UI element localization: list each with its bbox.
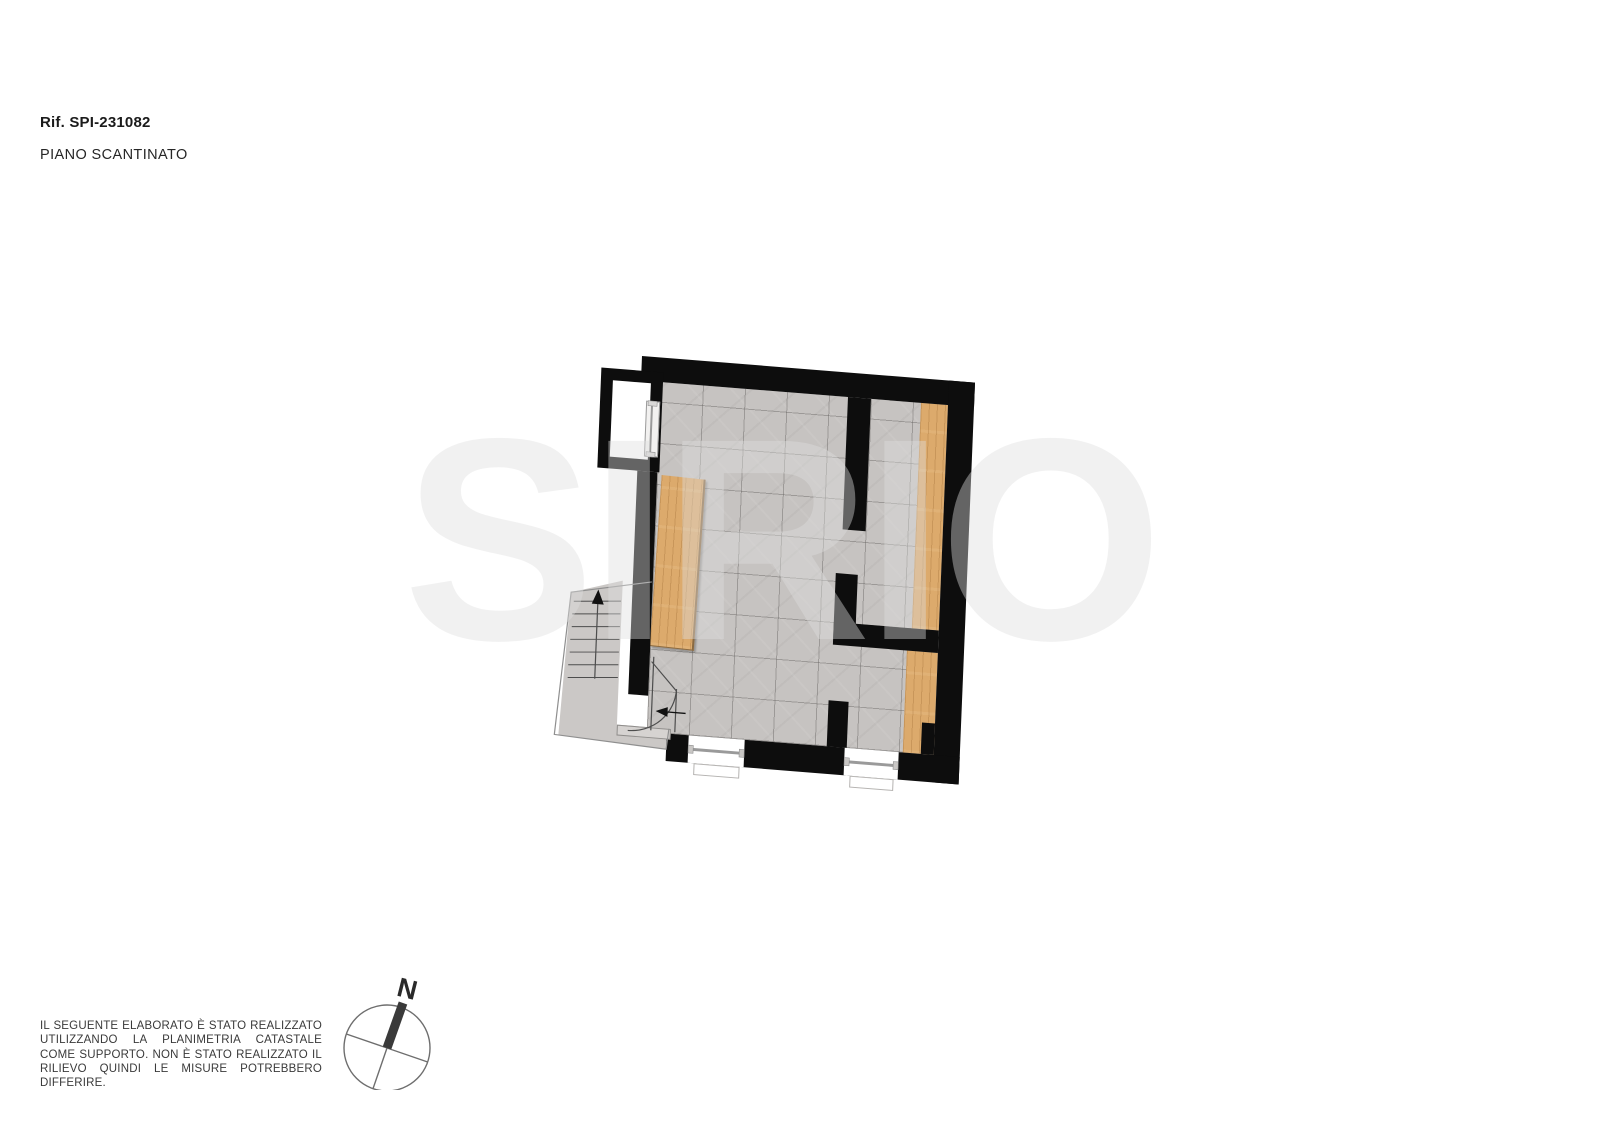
window-frame-1 <box>688 745 744 757</box>
north-label: N <box>394 972 420 1006</box>
floor-title: PIANO SCANTINATO <box>40 147 188 163</box>
reference-code: Rif. SPI-231082 <box>40 114 151 131</box>
disclaimer-text: IL SEGUENTE ELABORATO È STATO REALIZZATO… <box>40 1019 322 1090</box>
window-frame-2 <box>844 758 898 770</box>
watermark-text: SIRIO <box>403 396 1157 684</box>
page: { "header": { "reference": "Rif. SPI-231… <box>0 0 1600 1131</box>
compass-rose: N <box>337 950 437 1090</box>
compass-needle <box>387 1003 403 1048</box>
